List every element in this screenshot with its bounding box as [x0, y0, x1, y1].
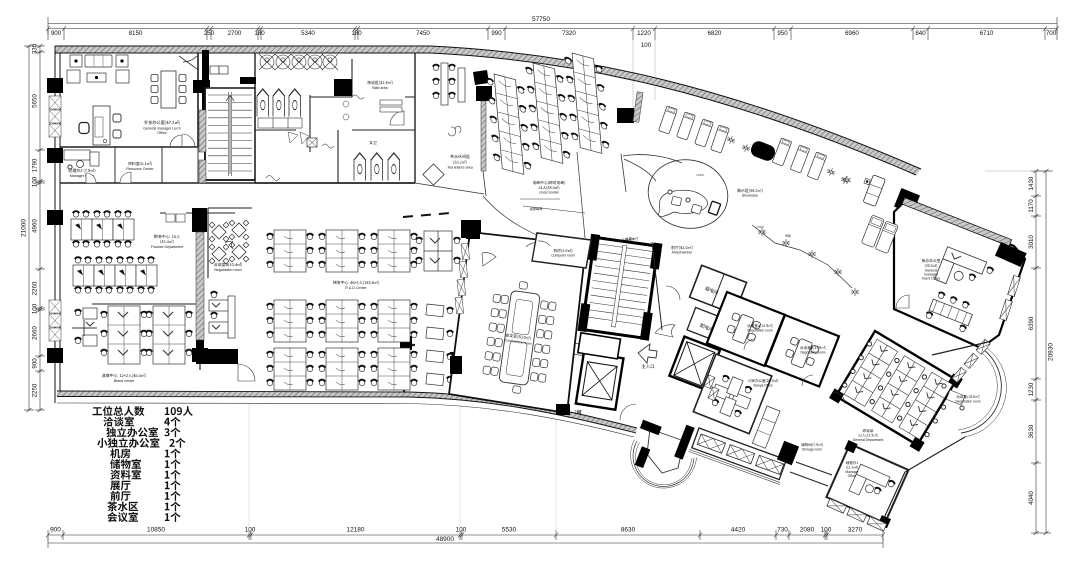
svg-text:Office: Office	[848, 474, 857, 478]
svg-text:Xiaoya Office: Xiaoya Office	[753, 384, 773, 388]
svg-text:100: 100	[32, 303, 39, 314]
svg-text:100: 100	[641, 42, 652, 49]
svg-text:5530: 5530	[502, 527, 517, 534]
svg-text:6820: 6820	[708, 30, 722, 37]
svg-text:2260: 2260	[32, 281, 39, 295]
svg-text:12180: 12180	[346, 527, 364, 534]
svg-text:5340: 5340	[301, 30, 315, 37]
svg-text:900: 900	[32, 358, 39, 369]
svg-text:57750: 57750	[532, 16, 550, 23]
svg-text:Negotiation room: Negotiation room	[747, 329, 772, 333]
svg-text:100: 100	[245, 527, 256, 534]
svg-text:900: 900	[50, 527, 61, 534]
svg-text:1790: 1790	[32, 158, 39, 172]
svg-text:General manager Luo's: General manager Luo's	[143, 127, 181, 131]
svg-text:1170: 1170	[1028, 199, 1035, 213]
svg-text:3630: 3630	[1028, 424, 1035, 438]
svg-text:7320: 7320	[562, 30, 576, 37]
svg-text:2700: 2700	[228, 30, 242, 37]
svg-text:Finance Department: Finance Department	[151, 245, 184, 249]
svg-text:3010: 3010	[1028, 235, 1035, 249]
svg-text:Brand center: Brand center	[114, 379, 135, 383]
svg-text:Tea leisure area: Tea leisure area	[447, 166, 473, 170]
svg-text:Office: Office	[157, 131, 166, 135]
svg-text:730: 730	[777, 527, 788, 534]
svg-text:8150: 8150	[129, 30, 143, 37]
svg-text:2660: 2660	[32, 326, 39, 340]
svg-text:10850: 10850	[147, 527, 165, 534]
svg-text:180: 180	[254, 30, 265, 37]
svg-text:950: 950	[777, 30, 788, 37]
svg-text:7450: 7450	[416, 30, 430, 37]
svg-text:250: 250	[204, 30, 215, 37]
svg-text:20930: 20930	[1048, 343, 1055, 361]
svg-text:Bath area: Bath area	[372, 86, 387, 90]
svg-text:330: 330	[32, 43, 39, 54]
svg-text:2080: 2080	[800, 527, 815, 534]
svg-text:Xue's Office: Xue's Office	[922, 277, 941, 281]
svg-text:Storage room: Storage room	[802, 448, 822, 452]
svg-text:180: 180	[351, 30, 362, 37]
svg-text:3270: 3270	[848, 527, 863, 534]
svg-text:4960: 4960	[32, 219, 39, 233]
svg-text:1230: 1230	[1028, 382, 1035, 396]
svg-text:840: 840	[915, 30, 926, 37]
svg-text:48900: 48900	[436, 536, 454, 543]
svg-text:Negotiation room: Negotiation room	[955, 400, 980, 404]
svg-text:1220: 1220	[637, 30, 651, 37]
svg-text:6960: 6960	[845, 30, 859, 37]
svg-text:Computer room: Computer room	[551, 254, 575, 258]
svg-text:Antechamber: Antechamber	[672, 251, 694, 255]
svg-text:900: 900	[51, 30, 62, 37]
svg-text:R & D Center: R & D Center	[345, 286, 367, 290]
svg-text:4420: 4420	[731, 527, 746, 534]
svg-text:100: 100	[821, 527, 832, 534]
svg-text:5650: 5650	[32, 94, 39, 108]
svg-text:Resource Center: Resource Center	[126, 167, 154, 171]
svg-text:Showcase: Showcase	[742, 194, 758, 198]
svg-text:100: 100	[456, 527, 467, 534]
svg-text:Negotiation room: Negotiation room	[214, 268, 241, 272]
svg-text:21000: 21000	[21, 219, 28, 237]
svg-text:2250: 2250	[32, 383, 39, 397]
svg-text:100: 100	[32, 176, 39, 187]
svg-text:8630: 8630	[621, 527, 636, 534]
svg-text:990: 990	[491, 30, 502, 37]
svg-text:1430: 1430	[1028, 176, 1035, 190]
svg-text:4040: 4040	[1028, 491, 1035, 505]
svg-text:Negotiation room: Negotiation room	[800, 351, 825, 355]
svg-text:6710: 6710	[980, 30, 994, 37]
svg-text:700: 700	[1046, 30, 1057, 37]
svg-text:General Department: General Department	[853, 438, 884, 442]
svg-text:cross border: cross border	[539, 191, 560, 195]
svg-text:6390: 6390	[1028, 316, 1035, 330]
